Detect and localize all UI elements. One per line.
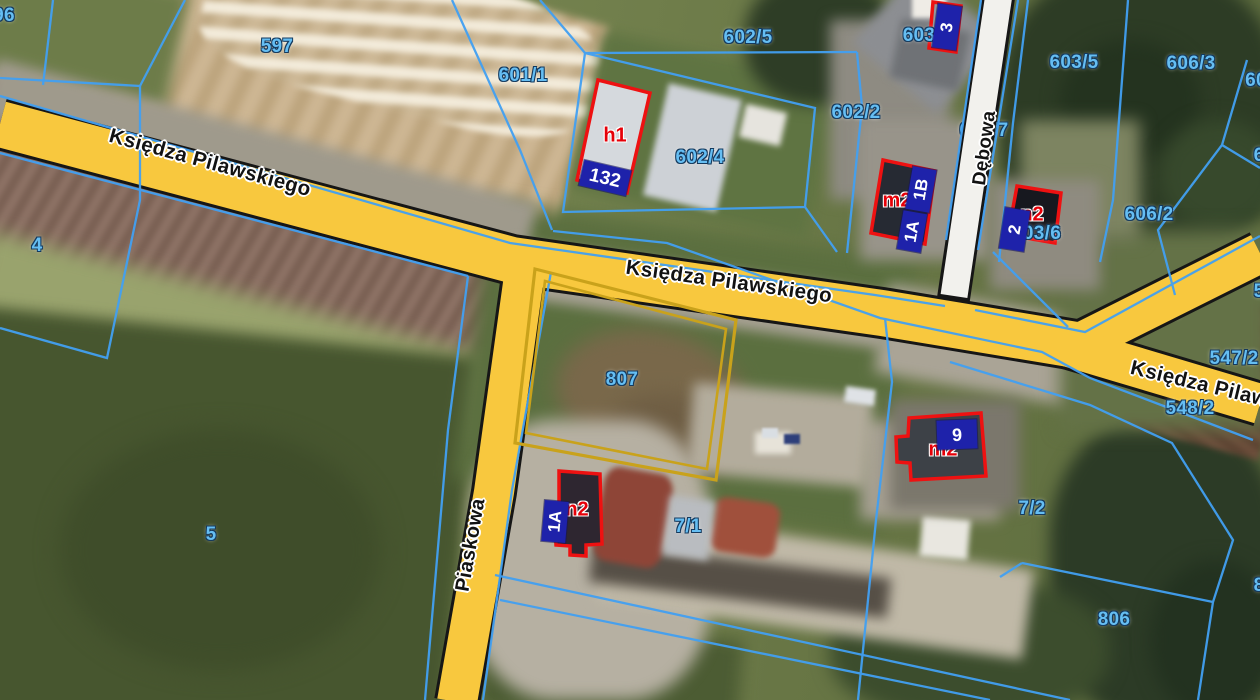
parcel-label-807: 807	[606, 369, 639, 391]
parcel-label-60: 60	[1245, 70, 1260, 92]
parcel-label-7-1: 7/1	[674, 516, 701, 538]
parcel-label-5: 5	[1254, 281, 1260, 303]
parcel-label-547-2: 547/2	[1209, 348, 1258, 370]
parcel-label-6: 6	[1254, 145, 1260, 167]
parcel-label-602-5: 602/5	[723, 27, 772, 49]
address-plate-text: 3	[938, 21, 956, 33]
address-plate-9: 9	[937, 419, 978, 449]
address-plate-text: 1B	[911, 177, 932, 201]
parcel-label-96: 96	[0, 5, 15, 27]
parcel-label-4: 4	[32, 235, 43, 257]
parcel-label-8: 8	[1254, 575, 1260, 597]
road-label-d-bowa-3: Dębowa	[969, 109, 1001, 187]
parcel-label-602-2: 602/2	[831, 102, 880, 124]
parcel-label-602-4: 602/4	[675, 147, 724, 169]
parcel-label-603-5: 603/5	[1049, 52, 1098, 74]
address-plate-1b: 1B	[905, 166, 936, 213]
address-plate-text: 132	[587, 165, 622, 191]
address-plate-text: 1A	[902, 219, 923, 243]
road-label-ksi-dza-pilawskiego-1: Księdza Pilawskiego	[624, 256, 833, 309]
parcel-label-603: 603	[903, 25, 936, 47]
parcel-label-601-1: 601/1	[498, 65, 547, 87]
address-plate-2: 2	[999, 207, 1030, 251]
address-plate-text: 9	[952, 425, 963, 443]
map-viewport[interactable]: 603/70	[0, 0, 1260, 700]
address-plate-3: 3	[932, 4, 962, 51]
address-plate-text: 1A	[546, 510, 565, 533]
address-plate-1a: 1A	[897, 210, 927, 253]
address-plate-132: 132	[579, 160, 632, 196]
parcel-label-5: 5	[206, 524, 217, 546]
parcel-label-7-2: 7/2	[1018, 498, 1045, 520]
parcel-label-806: 806	[1098, 609, 1131, 631]
road-label-piaskowa-4: Piaskowa	[451, 497, 490, 594]
map-labels: 96597601/1602/5602/4602/2603603/5606/360…	[0, 0, 1260, 700]
parcel-label-606-3: 606/3	[1166, 53, 1215, 75]
road-label-ksi-dza-pilawskiego-0: Księdza Pilawskiego	[106, 124, 313, 202]
address-plate-1a: 1A	[541, 500, 568, 543]
address-plate-text: 2	[1005, 223, 1023, 235]
parcel-label-606-2: 606/2	[1124, 204, 1173, 226]
building-label-h1-0: h1	[603, 125, 626, 148]
building-label-n2-5: n2	[565, 499, 588, 522]
parcel-label-597: 597	[261, 36, 294, 58]
parcel-label-548-2: 548/2	[1165, 398, 1214, 420]
